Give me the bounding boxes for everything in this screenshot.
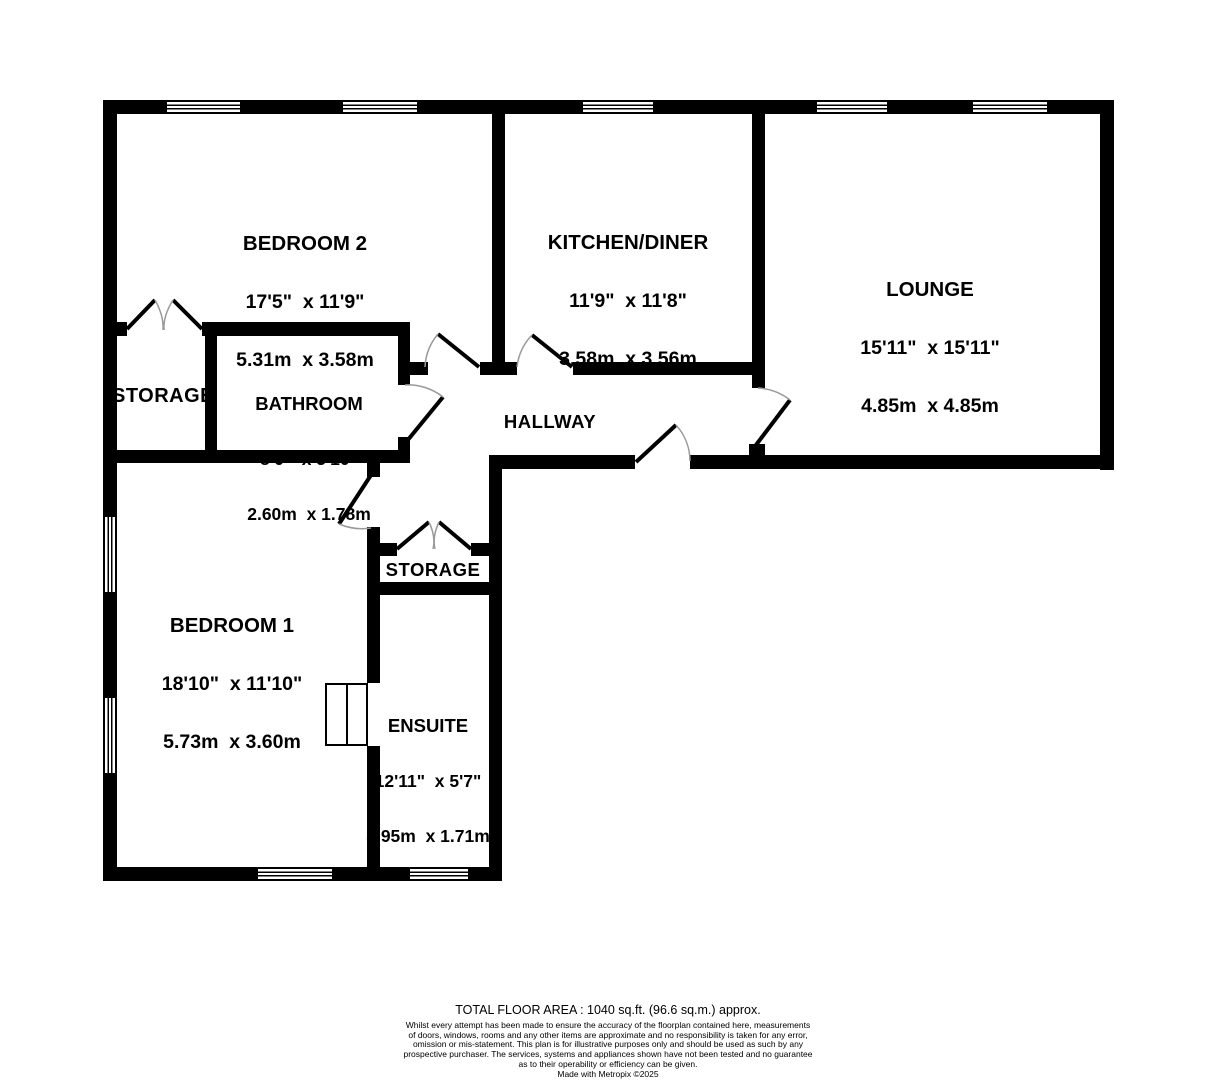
total-floor-area: TOTAL FLOOR AREA : 1040 sq.ft. (96.6 sq.… [0, 1003, 1216, 1017]
room-title: BEDROOM 2 [236, 233, 374, 255]
window-kitchen-top [583, 100, 653, 114]
room-title: LOUNGE [860, 279, 999, 301]
door-swing-arc [517, 335, 532, 367]
window-lounge-top-1 [817, 100, 887, 114]
room-title: BATHROOM [247, 394, 371, 414]
metropix-credit: Made with Metropix ©2025 [0, 1070, 1216, 1080]
room-dims-metric: 2.60m x 1.78m [247, 505, 371, 525]
wardrobe-unit [325, 683, 368, 746]
door-leaf [397, 522, 429, 549]
wall-bedroom2-kitchen [492, 114, 505, 362]
room-title: BEDROOM 1 [162, 615, 303, 637]
window-bedroom2-top-2 [343, 100, 417, 114]
door-swing-arc [758, 388, 790, 400]
wall-ensuite-top [367, 582, 502, 595]
door-swing-arc [155, 300, 163, 330]
room-dims-imperial: 8'6" x 5'10" [247, 450, 371, 470]
wall-lounge-bottom [690, 455, 1114, 469]
door-swing-arc [676, 425, 690, 461]
room-label-lounge: LOUNGE 15'11" x 15'11" 4.85m x 4.85m [860, 243, 999, 453]
wall-midstorage-left-stub [380, 543, 397, 556]
window-bedroom1-bottom [258, 867, 332, 881]
room-dims-imperial: 18'10" x 11'10" [162, 673, 303, 695]
door-leaf [127, 300, 155, 329]
room-label-ensuite: ENSUITE 12'11" x 5'7" 3.95m x 1.71m [366, 680, 490, 883]
door-leaf [173, 300, 202, 329]
wall-exterior-right [1100, 100, 1114, 470]
room-label-hallway: HALLWAY [504, 411, 596, 433]
window-lounge-top-2 [973, 100, 1047, 114]
window-bedroom1-left-2 [103, 698, 117, 773]
wall-storage-left-stub [103, 322, 127, 336]
door-swing-arc [434, 522, 439, 549]
floorplan-canvas: BEDROOM 2 17'5" x 11'9" 5.31m x 3.58m KI… [0, 0, 1216, 1080]
room-dims-imperial: 11'9" x 11'8" [548, 290, 709, 312]
door-swing-arc [164, 300, 173, 330]
window-bedroom2-top-1 [167, 100, 240, 114]
wall-midstorage-right-stub [471, 543, 489, 556]
door-leaf [756, 400, 790, 445]
disclaimer: Whilst every attempt has been made to en… [0, 1021, 1216, 1079]
door-leaf [407, 397, 443, 441]
wall-lowerleg-right [489, 455, 502, 881]
wall-bathroom-right-stub [398, 362, 428, 375]
door-swing-arc [405, 385, 443, 397]
wall-hallway-bottom [489, 455, 635, 469]
room-title: KITCHEN/DINER [548, 232, 709, 254]
window-bedroom1-left-1 [103, 517, 117, 592]
door-swings-layer [0, 0, 1216, 1080]
room-label-storage-left: STORAGE [112, 385, 214, 408]
room-dims-metric: 5.73m x 3.60m [162, 731, 303, 753]
door-swing-arc [429, 522, 434, 549]
door-leaf [636, 425, 676, 462]
door-leaf [438, 334, 479, 367]
wall-bathroom-right-upper [398, 336, 410, 385]
wall-kitchen-lounge [752, 114, 765, 388]
room-dims-metric: 3.95m x 1.71m [366, 827, 490, 847]
room-title: ENSUITE [366, 716, 490, 736]
room-dims-imperial: 12'11" x 5'7" [366, 772, 490, 792]
room-label-bedroom1: BEDROOM 1 18'10" x 11'10" 5.73m x 3.60m [162, 579, 303, 789]
door-leaf [439, 522, 471, 549]
room-dims-imperial: 15'11" x 15'11" [860, 337, 999, 359]
wall-lounge-door-stub [749, 444, 765, 456]
room-label-bathroom: BATHROOM 8'6" x 5'10" 2.60m x 1.78m [247, 358, 371, 561]
room-label-storage-middle: STORAGE [386, 559, 481, 581]
room-dims-metric: 3.58m x 3.56m [548, 348, 709, 370]
room-dims-imperial: 17'5" x 11'9" [236, 291, 374, 313]
wall-hall-top-stub [480, 362, 517, 375]
room-dims-metric: 4.85m x 4.85m [860, 395, 999, 417]
room-label-kitchen-diner: KITCHEN/DINER 11'9" x 11'8" 3.58m x 3.56… [548, 196, 709, 406]
